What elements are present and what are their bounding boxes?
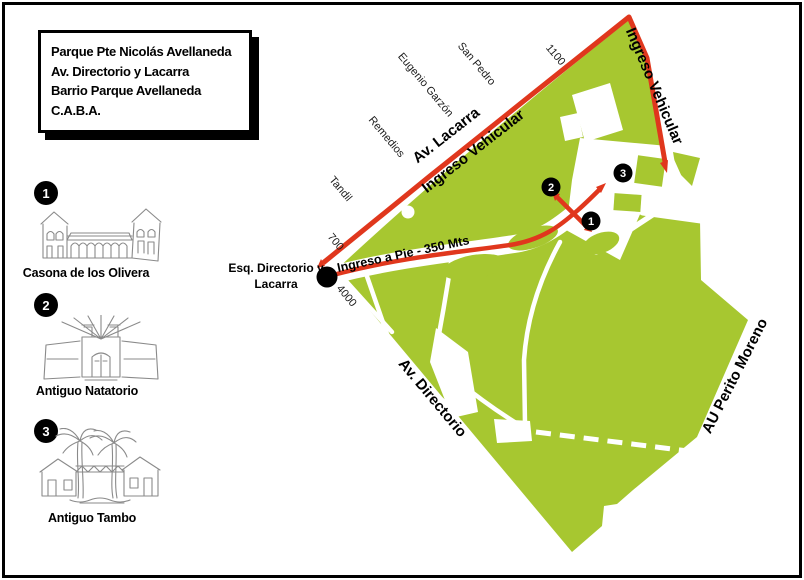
casona-building-sketch-icon [38,200,166,266]
street-label-remedios: Remedios [366,114,407,160]
legend-label-natatorio: Antiguo Natatorio [12,384,162,398]
svg-text:3: 3 [620,168,626,180]
title-box: Parque Pte Nicolás Avellaneda Av. Direct… [38,30,252,133]
white-dot-clearing [402,206,415,219]
svg-text:1: 1 [588,216,594,228]
street-number-1100: 1100 [543,42,567,68]
corner-label-line1: Esq. Directorio y [228,261,324,275]
legend-label-casona: Casona de los Olivera [11,266,161,280]
map-marker-2: 2 [542,178,561,197]
legend-number-2: 2 [34,293,58,317]
title-line-2: Av. Directorio y Lacarra [51,62,239,82]
title-line-4: C.A.B.A. [51,101,239,121]
map-marker-1: 1 [582,212,601,231]
title-line-3: Barrio Parque Avellaneda [51,81,239,101]
svg-text:2: 2 [548,182,554,194]
street-label-tandil: Tandil [326,174,354,204]
tambo-palms-sketch-icon [36,428,164,508]
map-marker-3: 3 [614,164,633,183]
title-line-1: Parque Pte Nicolás Avellaneda [51,42,239,62]
corner-label-line2: Lacarra [254,277,298,291]
white-pond [494,419,532,443]
natatorio-building-sketch-icon [40,315,162,383]
street-label-eugenio-garzon: Eugenio Garzón [395,51,455,120]
legend-label-tambo: Antiguo Tambo [17,511,167,525]
map-page: 1 2 3 Tandil Remedios Eugenio Garzón San… [0,0,804,580]
street-label-san-pedro: San Pedro [455,40,498,88]
